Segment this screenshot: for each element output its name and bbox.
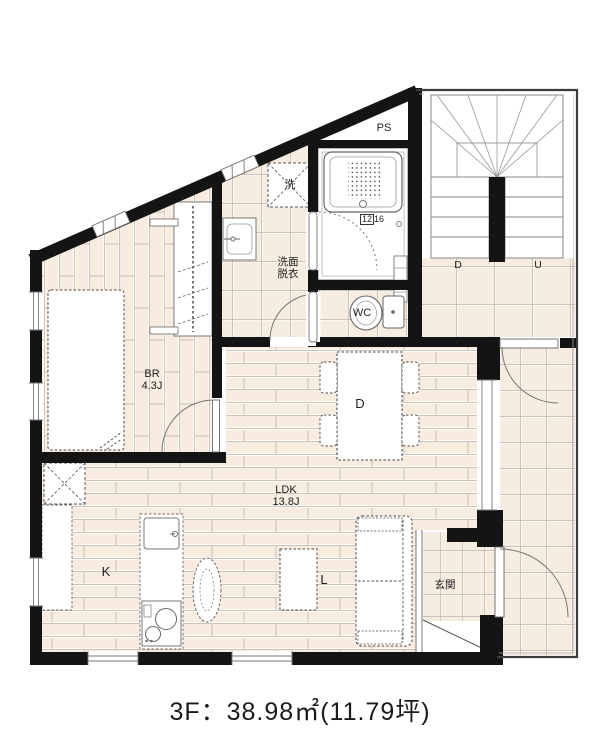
window-bottom-1: [88, 651, 138, 665]
floor-porch: [500, 348, 575, 655]
label-washroom: 洗面脱衣: [278, 256, 299, 280]
stair-divider-wall: [489, 177, 505, 262]
label-washroom-line1: 洗面: [278, 256, 299, 268]
kitchen-sink-icon: [144, 518, 179, 549]
label-bedroom: BR4.3J: [142, 368, 163, 392]
label-entrance: 玄関: [435, 579, 456, 591]
entrance-partition: [416, 530, 422, 652]
sofa-icon: [356, 516, 412, 646]
label-laundry: 洗: [285, 179, 296, 191]
label-washroom-line2: 脱衣: [278, 268, 299, 280]
label-bath-size: 1216: [360, 213, 384, 225]
label-pipe-space: PS: [377, 122, 392, 134]
label-stair-down: D: [454, 259, 462, 271]
bathtub-icon: [324, 152, 402, 212]
fridge-space-icon: [44, 463, 85, 504]
label-living: L: [320, 574, 327, 586]
kitchen-counter-icon: [140, 514, 183, 649]
label-ldk: LDK13.8J: [273, 484, 300, 508]
window-bedroom-left-2: [29, 383, 43, 420]
floorplan-drawing: [0, 0, 600, 742]
label-ldk-line1: LDK: [275, 484, 296, 496]
kitchen-cabinet-icon: [42, 505, 72, 610]
label-wc: WC: [353, 307, 371, 319]
label-dining: D: [355, 398, 364, 410]
label-bedroom-line2: 4.3J: [142, 380, 163, 392]
stove-icon: [142, 601, 181, 646]
window-bottom-2: [232, 651, 292, 665]
plant-icon: [193, 558, 221, 622]
living-table-icon: [280, 549, 317, 610]
window-bedroom-left-1: [29, 292, 43, 330]
label-stair-up: U: [534, 259, 542, 271]
label-bedroom-line1: BR: [144, 368, 159, 380]
wc-door: [306, 292, 320, 342]
label-bath-size-rest: 16: [374, 214, 384, 224]
label-bath-size-boxed: 12: [360, 214, 374, 225]
floor-caption: 3F：38.98㎡(11.79坪): [0, 692, 600, 728]
floor-corridor: [422, 258, 575, 337]
bed-icon: [48, 290, 124, 450]
window-ldk-east: [477, 380, 497, 510]
label-ldk-line2: 13.8J: [273, 496, 300, 508]
washbasin-icon: [223, 218, 256, 260]
window-kitchen-left: [29, 558, 43, 606]
floorplan-page: PS 洗 1216 洗面脱衣 WC BR4.3J D LDK13.8J K L …: [0, 0, 600, 742]
label-kitchen: K: [102, 566, 111, 578]
stairs-icon: [424, 92, 573, 262]
